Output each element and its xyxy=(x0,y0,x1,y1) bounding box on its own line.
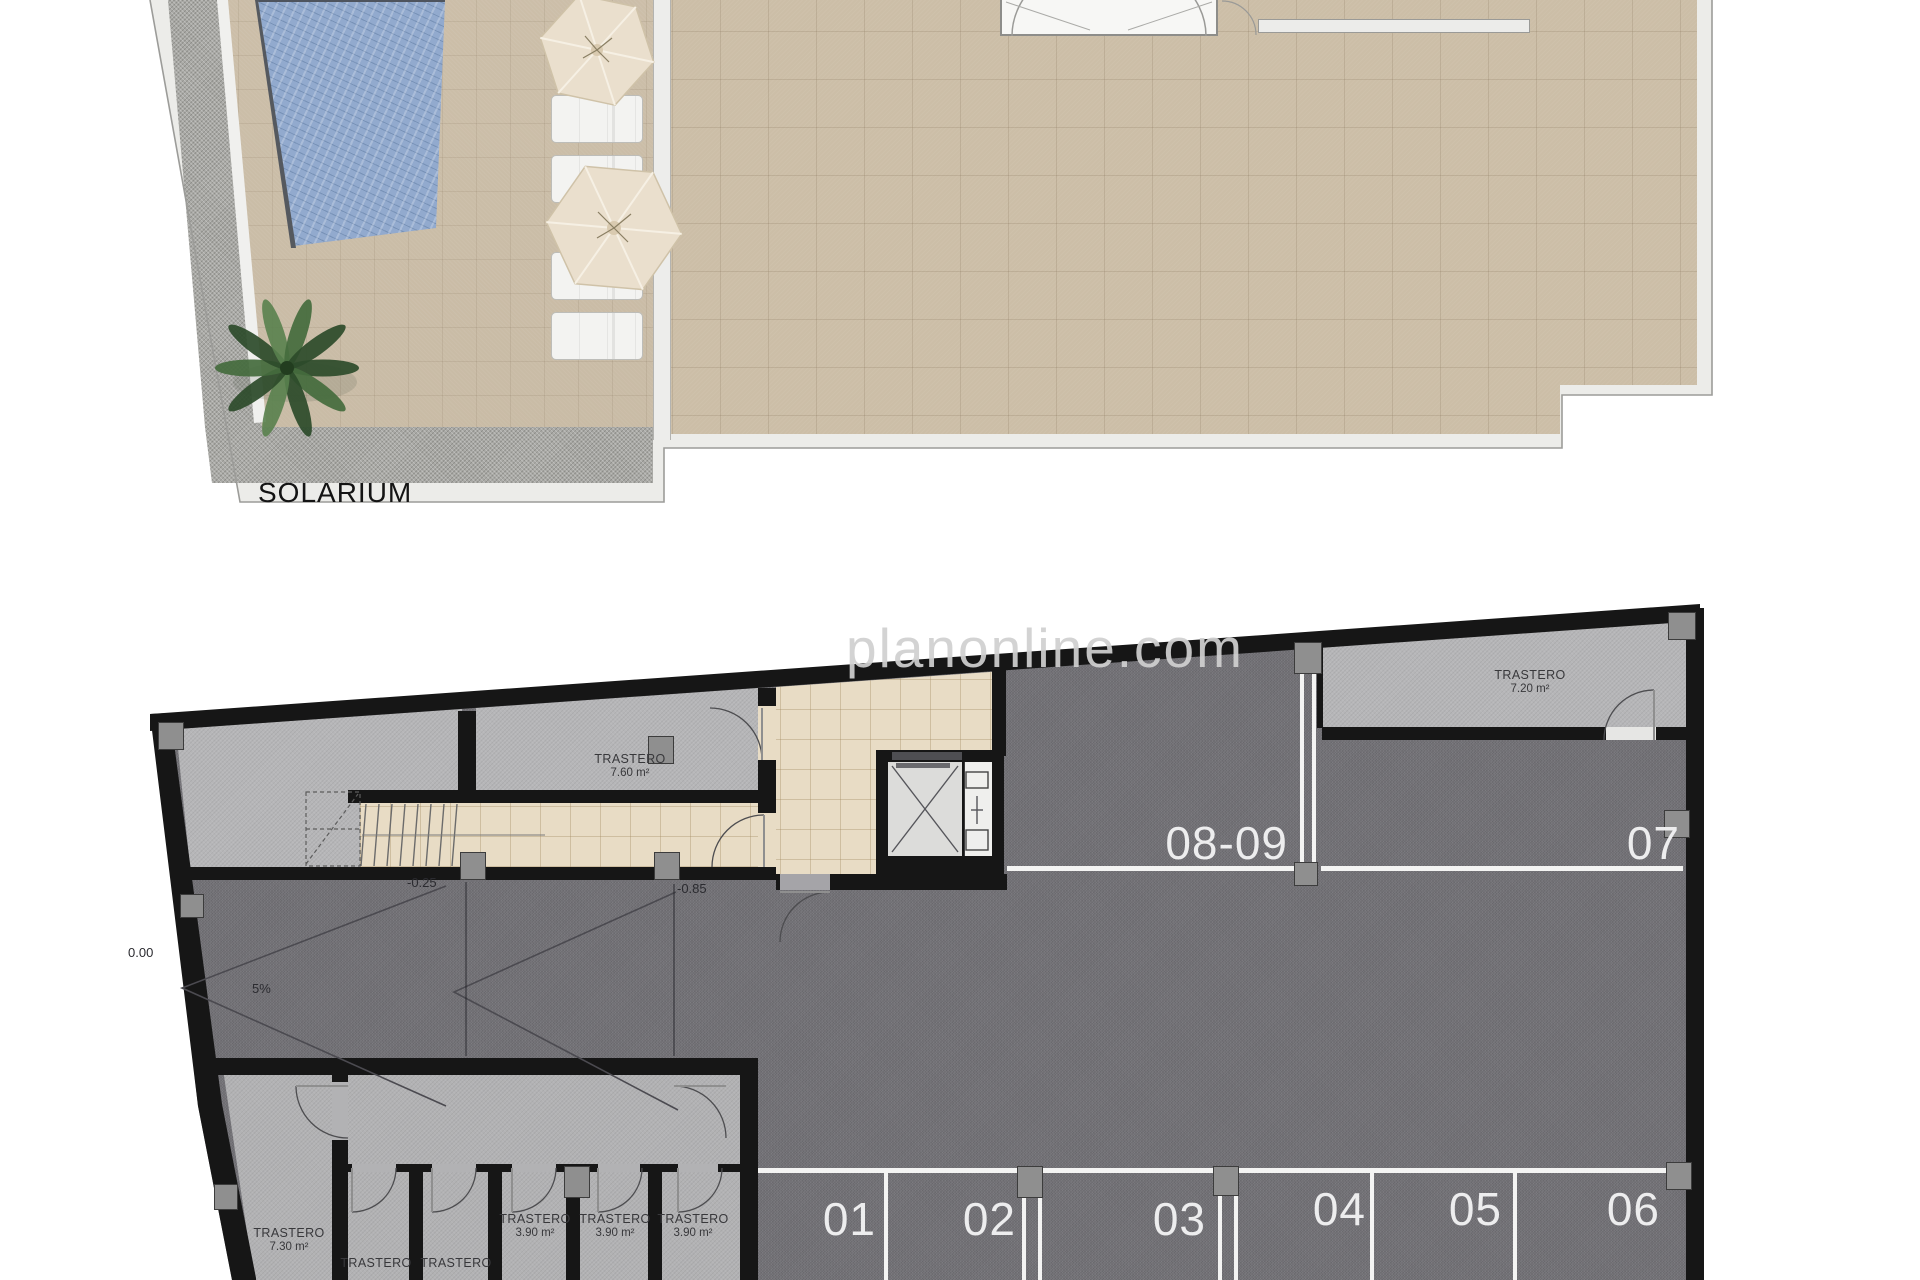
parking-number-05: 05 xyxy=(1402,1186,1502,1232)
column-marker xyxy=(564,1166,590,1198)
parking-number-06: 06 xyxy=(1560,1186,1660,1232)
terrace-divider-wall xyxy=(653,0,671,440)
parking-number-02: 02 xyxy=(916,1196,1016,1242)
door-opening xyxy=(1606,727,1656,740)
parking-number-03: 03 xyxy=(1106,1196,1206,1242)
column-marker xyxy=(1213,1166,1239,1196)
terrace-wall-segment xyxy=(1258,19,1530,33)
storeroom-label-bottom: TRASTERO xyxy=(414,1256,498,1271)
door-opening xyxy=(678,1164,718,1172)
door-opening xyxy=(512,1164,556,1172)
column-marker xyxy=(1668,612,1696,640)
column-marker xyxy=(1017,1166,1043,1198)
stair-access-structure xyxy=(1000,0,1218,36)
stair-corridor xyxy=(360,803,776,867)
column-marker xyxy=(158,722,184,750)
parking-divider xyxy=(1300,648,1304,868)
sun-lounger xyxy=(551,312,643,360)
storeroom-label-390: TRASTERO3.90 m² xyxy=(572,1212,658,1240)
storage-block-north-wall xyxy=(205,1058,758,1075)
parking-divider xyxy=(1513,1173,1517,1280)
elevator-machinery xyxy=(896,763,950,768)
column-marker xyxy=(180,894,204,918)
column-marker xyxy=(654,852,680,880)
column-marker xyxy=(1294,862,1318,886)
door-opening xyxy=(758,813,776,867)
solarium-title: SOLARIUM xyxy=(258,477,412,509)
parking-number-01: 01 xyxy=(776,1196,876,1242)
parking-divider xyxy=(1370,1173,1374,1280)
door-opening xyxy=(598,1164,640,1172)
sun-lounger xyxy=(551,252,643,300)
storeroom-label-390: TRASTERO3.90 m² xyxy=(650,1212,736,1240)
column-marker xyxy=(214,1184,238,1210)
storeroom-label-390: TRASTERO3.90 m² xyxy=(492,1212,578,1240)
sun-lounger xyxy=(551,95,643,143)
door-opening xyxy=(332,1082,348,1140)
storeroom-label-720: TRASTERO7.20 m² xyxy=(1472,668,1588,696)
column-marker xyxy=(460,852,486,880)
level-label-085: -0.85 xyxy=(677,882,707,895)
door-opening xyxy=(352,1164,396,1172)
parking-number-07: 07 xyxy=(1580,820,1680,866)
storage-block-east-wall xyxy=(740,1058,758,1280)
room-divider-wall xyxy=(458,711,476,795)
elevator-machinery xyxy=(892,752,962,760)
corridor-north-wall xyxy=(348,790,776,803)
parking-divider xyxy=(1312,648,1316,868)
elevator-car xyxy=(888,762,962,856)
door-opening xyxy=(758,706,776,760)
parking-number-04: 04 xyxy=(1266,1186,1366,1232)
sun-lounger xyxy=(551,155,643,203)
level-label-000: 0.00 xyxy=(128,946,153,959)
storeroom-label-760: TRASTERO7.60 m² xyxy=(572,752,688,780)
door-opening xyxy=(780,874,830,890)
column-marker xyxy=(1294,642,1322,674)
column-marker xyxy=(1666,1162,1692,1190)
storeroom-label-bottom: TRASTERO xyxy=(334,1256,418,1271)
slope-label: 5% xyxy=(252,982,271,995)
door-opening xyxy=(432,1164,476,1172)
storeroom-label-730: TRASTERO7.30 m² xyxy=(234,1226,344,1254)
parking-divider xyxy=(884,1173,888,1280)
level-label-025: -0.25 xyxy=(407,876,437,889)
watermark: planonline.com xyxy=(846,616,1244,680)
floorplan-sheet: SOLARIUM planonline.com TRASTERO7.60 m² … xyxy=(0,0,1920,1280)
parking-number-08-09: 08-09 xyxy=(1148,820,1288,866)
elevator-counterweight-bay xyxy=(964,762,992,856)
